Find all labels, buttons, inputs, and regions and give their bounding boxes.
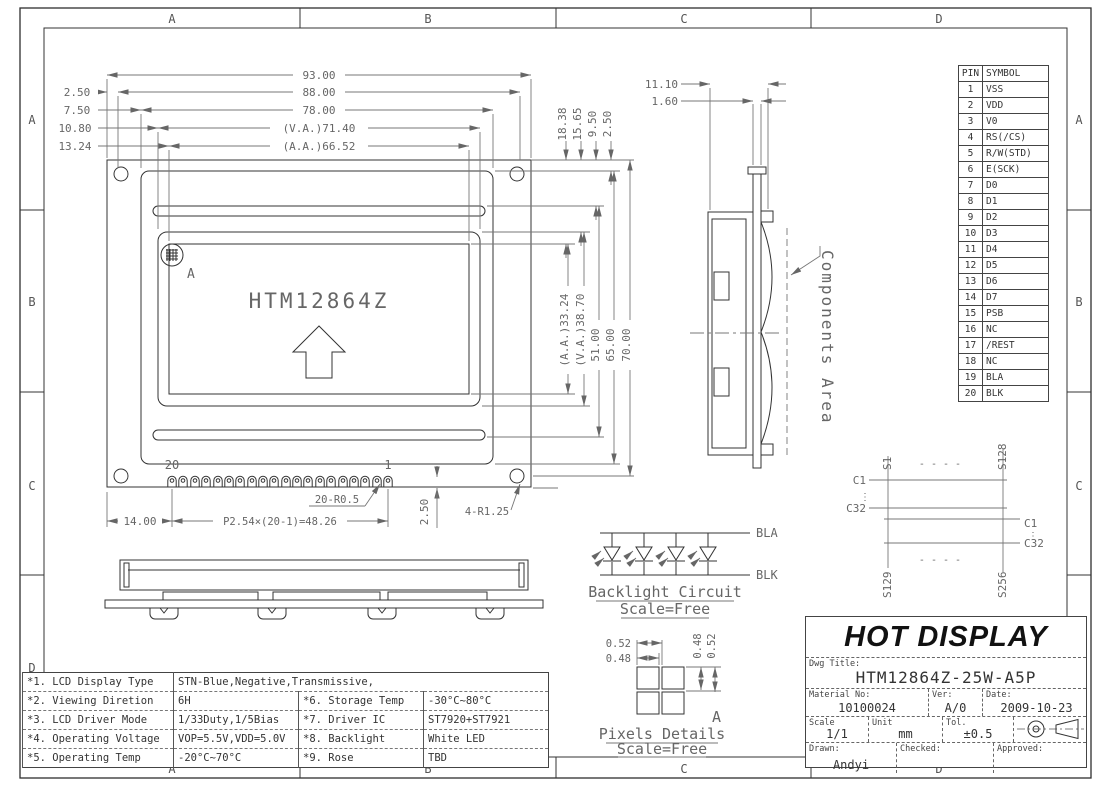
pin-symbol: BLK	[983, 386, 1049, 402]
pin-symbol: /REST	[983, 338, 1049, 354]
pin-number-1: 1	[384, 458, 391, 472]
spec-value: STN-Blue,Negative,Transmissive,	[174, 673, 549, 692]
dim-height-51: 51.00	[589, 328, 602, 361]
pin-no: 4	[959, 130, 983, 146]
unit-value: mm	[869, 727, 942, 741]
projection-symbol-icon	[1014, 717, 1089, 741]
table-row: 4RS(/CS)	[959, 130, 1049, 146]
frame-profile	[120, 560, 528, 590]
table-row: 5R/W(STD)	[959, 146, 1049, 162]
table-row: *2. Viewing Diretion 6H *6. Storage Temp…	[23, 692, 549, 711]
dim-height-65: 65.00	[604, 328, 617, 361]
engineering-drawing-page: { "zones": {"letters": ["A","B","C","D"]…	[0, 0, 1111, 798]
table-row: 1VSS	[959, 82, 1049, 98]
segment-s129: S129	[881, 572, 894, 599]
table-row: 6E(SCK)	[959, 162, 1049, 178]
spec-value: -20°C~70°C	[174, 749, 299, 768]
zone-right-a: A	[1075, 113, 1083, 127]
table-row: 10D3	[959, 226, 1049, 242]
segment-s256: S256	[996, 572, 1009, 599]
pin-symbol: VSS	[983, 82, 1049, 98]
spec-label: *9. Rose	[299, 749, 424, 768]
table-row: 7D0	[959, 178, 1049, 194]
bla-label: BLA	[756, 526, 778, 540]
zone-left-a: A	[28, 113, 36, 127]
zone-left-c: C	[28, 479, 35, 493]
mounting-hole	[510, 167, 524, 181]
dim-top-1565: 15.65	[571, 107, 584, 140]
backlight-scale: Scale=Free	[620, 600, 710, 618]
drawn-label: Drawn:	[809, 744, 840, 754]
dim-top-950: 9.50	[586, 111, 599, 138]
pin-symbol: BLA	[983, 370, 1049, 386]
led-symbol	[593, 533, 621, 575]
table-row: 18NC	[959, 354, 1049, 370]
dim-pixel-pitch-h: 0.52	[606, 638, 631, 650]
table-row: 14D7	[959, 290, 1049, 306]
pin-symbol: VDD	[983, 98, 1049, 114]
pin-symbol: V0	[983, 114, 1049, 130]
mounting-hole	[114, 469, 128, 483]
pin-no: 14	[959, 290, 983, 306]
spec-label: *8. Backlight	[299, 730, 424, 749]
dim-width-total: 93.00	[302, 69, 335, 82]
dim-offset-1324: 13.24	[58, 140, 91, 153]
backlight-title: Backlight Circuit	[588, 583, 742, 601]
table-row: *4. Operating Voltage VOP=5.5V,VDD=5.0V …	[23, 730, 549, 749]
dim-top-1838: 18.38	[556, 107, 569, 140]
ver-label: Ver:	[932, 690, 952, 700]
pin-symbol: D1	[983, 194, 1049, 210]
ver-value: A/0	[929, 701, 982, 715]
viewing-area	[158, 232, 480, 406]
table-row: 16NC	[959, 322, 1049, 338]
spec-label: *3. LCD Driver Mode	[23, 711, 174, 730]
drawn-value: Andyi	[806, 758, 896, 772]
bezel-outline	[141, 171, 493, 464]
zone-right-b: B	[1075, 295, 1082, 309]
pin-no: 5	[959, 146, 983, 162]
zone-top-d: D	[935, 12, 942, 26]
table-row: 2VDD	[959, 98, 1049, 114]
table-row: 11D4	[959, 242, 1049, 258]
components-area-label: Components Area	[818, 250, 837, 425]
pin-no: 10	[959, 226, 983, 242]
dwg-title-value: HTM12864Z-25W-A5P	[806, 668, 1086, 687]
zone-right-c: C	[1075, 479, 1082, 493]
spec-value: 6H	[174, 692, 299, 711]
bezel-slot-top	[153, 206, 485, 216]
dim-width-88: 88.00	[302, 86, 335, 99]
dim-offset-750: 7.50	[64, 104, 91, 117]
common-dots-left: ⋮	[860, 492, 870, 503]
pin-symbol: D0	[983, 178, 1049, 194]
pin-no: 19	[959, 370, 983, 386]
active-area	[169, 244, 469, 394]
tol-value: ±0.5	[943, 727, 1013, 741]
spec-label: *2. Viewing Diretion	[23, 692, 174, 711]
mounting-hole	[510, 469, 524, 483]
dim-width-va: (V.A.)71.40	[283, 122, 356, 135]
front-view: HTM12864Z A 20 1	[107, 160, 531, 487]
pin-symbol: NC	[983, 354, 1049, 370]
dim-height-va: (V.A.)38.70	[574, 294, 587, 367]
table-row: 8D1	[959, 194, 1049, 210]
pin-no: 20	[959, 386, 983, 402]
pin-no: 16	[959, 322, 983, 338]
spec-value: 1/33Duty,1/5Bias	[174, 711, 299, 730]
pin-number-20: 20	[165, 458, 179, 472]
pin-symbol: D2	[983, 210, 1049, 226]
dim-pixel-size-h: 0.48	[606, 653, 631, 665]
pin-symbol: NC	[983, 322, 1049, 338]
table-row: 13D6	[959, 274, 1049, 290]
pin-table-header-pin: PIN	[959, 66, 983, 82]
spec-value: ST7920+ST7921	[424, 711, 549, 730]
zone-bottom-c: C	[680, 762, 687, 776]
common-c1-left: C1	[853, 474, 866, 487]
pin-no: 15	[959, 306, 983, 322]
pin-no: 12	[959, 258, 983, 274]
table-row: 9D2	[959, 210, 1049, 226]
dim-pixel-pitch-v: 0.52	[706, 633, 718, 658]
pixels-details: 0.52 0.48 0.48 0.52 A Pixels Details Sca…	[599, 633, 725, 758]
zone-top-b: B	[424, 12, 431, 26]
pin-symbol: E(SCK)	[983, 162, 1049, 178]
dim-top-250: 2.50	[601, 111, 614, 138]
dim-offset-250: 2.50	[64, 86, 91, 99]
pcb-outline	[107, 160, 531, 487]
pixels-scale: Scale=Free	[617, 740, 707, 758]
table-row: *1. LCD Display Type STN-Blue,Negative,T…	[23, 673, 549, 692]
pin-row	[168, 476, 392, 487]
pin-symbol: RS(/CS)	[983, 130, 1049, 146]
spec-value: White LED	[424, 730, 549, 749]
spec-label: *1. LCD Display Type	[23, 673, 174, 692]
pcb-profile	[105, 600, 543, 608]
spec-value: -30°C~80°C	[424, 692, 549, 711]
orientation-arrow	[293, 326, 345, 378]
zone-left-b: B	[28, 295, 35, 309]
common-c32-left: C32	[846, 502, 866, 515]
spec-value: VOP=5.5V,VDD=5.0V	[174, 730, 299, 749]
pin-no: 13	[959, 274, 983, 290]
bezel-slot-bottom	[153, 430, 485, 440]
segment-s1: S1	[881, 457, 894, 470]
pin-table-header-symbol: SYMBOL	[983, 66, 1049, 82]
spec-label: *4. Operating Voltage	[23, 730, 174, 749]
bottom-view	[105, 560, 543, 619]
spec-table: *1. LCD Display Type STN-Blue,Negative,T…	[22, 672, 549, 768]
pixels-detail-callout: A	[712, 708, 721, 726]
zone-top-c: C	[680, 12, 687, 26]
dim-width-78: 78.00	[302, 104, 335, 117]
dim-pin-pitch: P2.54×(20-1)=48.26	[223, 516, 337, 528]
pin-no: 1	[959, 82, 983, 98]
pin-no: 2	[959, 98, 983, 114]
pixel-detail-callout: A	[187, 267, 195, 282]
spec-label: *7. Driver IC	[299, 711, 424, 730]
pin-symbol: D3	[983, 226, 1049, 242]
dim-pin-drop: 2.50	[418, 499, 431, 526]
led-symbol	[657, 533, 685, 575]
segment-dots-top: - - - -	[919, 459, 961, 470]
table-row: 15PSB	[959, 306, 1049, 322]
approved-label: Approved:	[997, 744, 1043, 754]
scale-value: 1/1	[806, 727, 868, 741]
pin-symbol: D5	[983, 258, 1049, 274]
dim-height-aa: (A.A.)33.24	[558, 293, 571, 366]
title-block: HOT DISPLAY Dwg Title: HTM12864Z-25W-A5P…	[805, 616, 1087, 768]
table-row: *3. LCD Driver Mode 1/33Duty,1/5Bias *7.…	[23, 711, 549, 730]
material-no-value: 10100024	[806, 701, 928, 715]
dim-width-aa: (A.A.)66.52	[283, 140, 356, 153]
common-c1-right: C1	[1024, 517, 1037, 530]
pin-table: PINSYMBOL 1VSS 2VDD 3V0 4RS(/CS) 5R/W(ST…	[958, 65, 1044, 402]
table-row: 3V0	[959, 114, 1049, 130]
table-row: 20BLK	[959, 386, 1049, 402]
dim-left-margin: 14.00	[123, 515, 156, 528]
blk-label: BLK	[756, 568, 778, 582]
common-dots-right: ⋮	[1028, 531, 1038, 542]
zone-top-a: A	[168, 12, 176, 26]
table-row: 19BLA	[959, 370, 1049, 386]
dim-pin-radius: 20-R0.5	[315, 494, 359, 506]
table-row: 17/REST	[959, 338, 1049, 354]
segment-s128: S128	[996, 444, 1009, 471]
backlight-circuit: BLA BLK Backlight Circuit Scale=Free	[588, 526, 778, 618]
date-label: Date:	[986, 690, 1012, 700]
segment-dots-bottom: - - - -	[919, 555, 961, 566]
module-logo: HTM12864Z	[249, 289, 390, 313]
spec-label: *5. Operating Temp	[23, 749, 174, 768]
dim-offset-1080: 10.80	[58, 122, 91, 135]
dim-side-pcb: 1.60	[652, 95, 679, 108]
pin-symbol: D4	[983, 242, 1049, 258]
dim-pixel-size-v: 0.48	[692, 633, 704, 658]
table-row: 12D5	[959, 258, 1049, 274]
dim-side-total: 11.10	[645, 78, 678, 91]
segment-diagram: S1 S128 S129 S256 C1 C32 C1 C32 - - - - …	[846, 444, 1044, 599]
table-row: *5. Operating Temp -20°C~70°C *9. Rose T…	[23, 749, 549, 768]
pcb-edge	[753, 174, 761, 468]
pin-symbol: D6	[983, 274, 1049, 290]
mounting-hole	[114, 167, 128, 181]
company-logo: HOT DISPLAY	[806, 617, 1086, 657]
dim-hole-radius: 4-R1.25	[465, 506, 509, 518]
pin-no: 9	[959, 210, 983, 226]
pin-symbol: PSB	[983, 306, 1049, 322]
dim-height-70: 70.00	[620, 328, 633, 361]
pin-no: 17	[959, 338, 983, 354]
spec-label: *6. Storage Temp	[299, 692, 424, 711]
pin-no: 11	[959, 242, 983, 258]
pin-symbol: D7	[983, 290, 1049, 306]
checked-label: Checked:	[900, 744, 941, 754]
pin-no: 6	[959, 162, 983, 178]
pixel-detail-marker	[161, 244, 183, 266]
pin-no: 7	[959, 178, 983, 194]
pin-no: 3	[959, 114, 983, 130]
pin-no: 8	[959, 194, 983, 210]
pin-no: 18	[959, 354, 983, 370]
pin-symbol: R/W(STD)	[983, 146, 1049, 162]
led-symbol	[625, 533, 653, 575]
led-symbol	[689, 533, 717, 575]
material-no-label: Material No:	[809, 690, 870, 700]
side-view: Components Area 11.10 1.60	[645, 78, 837, 468]
spec-value: TBD	[424, 749, 549, 768]
date-value: 2009-10-23	[983, 701, 1090, 715]
